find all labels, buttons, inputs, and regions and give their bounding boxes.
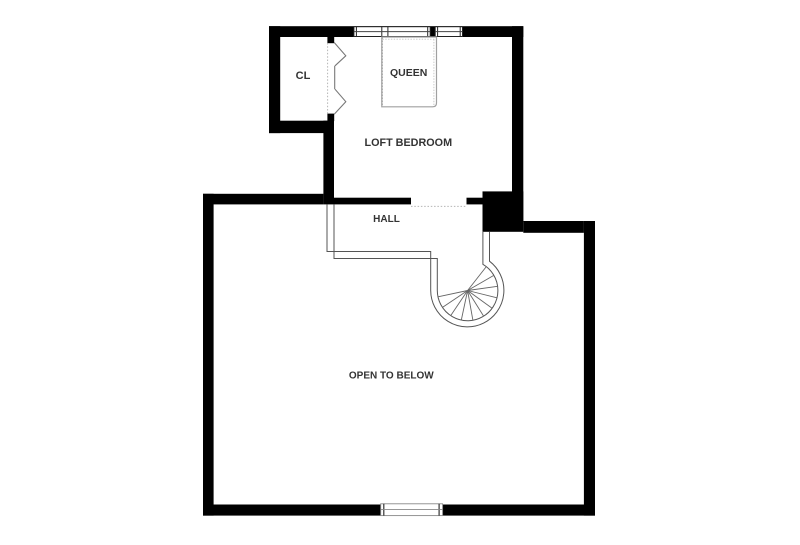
svg-text:OPEN TO BELOW: OPEN TO BELOW [349,371,434,382]
svg-text:QUEEN: QUEEN [390,67,427,79]
svg-text:LOFT BEDROOM: LOFT BEDROOM [365,137,453,149]
svg-text:CL: CL [296,70,311,82]
svg-text:HALL: HALL [373,214,400,225]
